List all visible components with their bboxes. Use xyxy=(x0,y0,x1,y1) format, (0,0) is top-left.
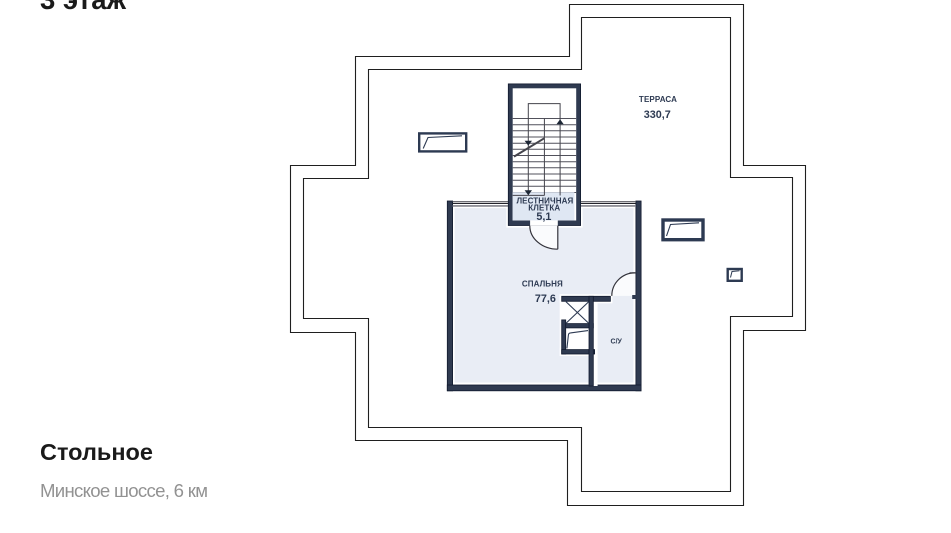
svg-text:С/У: С/У xyxy=(611,339,623,346)
svg-text:ТЕРРАСА: ТЕРРАСА xyxy=(639,95,677,104)
svg-text:5,1: 5,1 xyxy=(536,211,551,223)
svg-text:77,6: 77,6 xyxy=(535,293,556,305)
svg-text:330,7: 330,7 xyxy=(644,109,671,121)
svg-text:СПАЛЬНЯ: СПАЛЬНЯ xyxy=(522,280,563,289)
